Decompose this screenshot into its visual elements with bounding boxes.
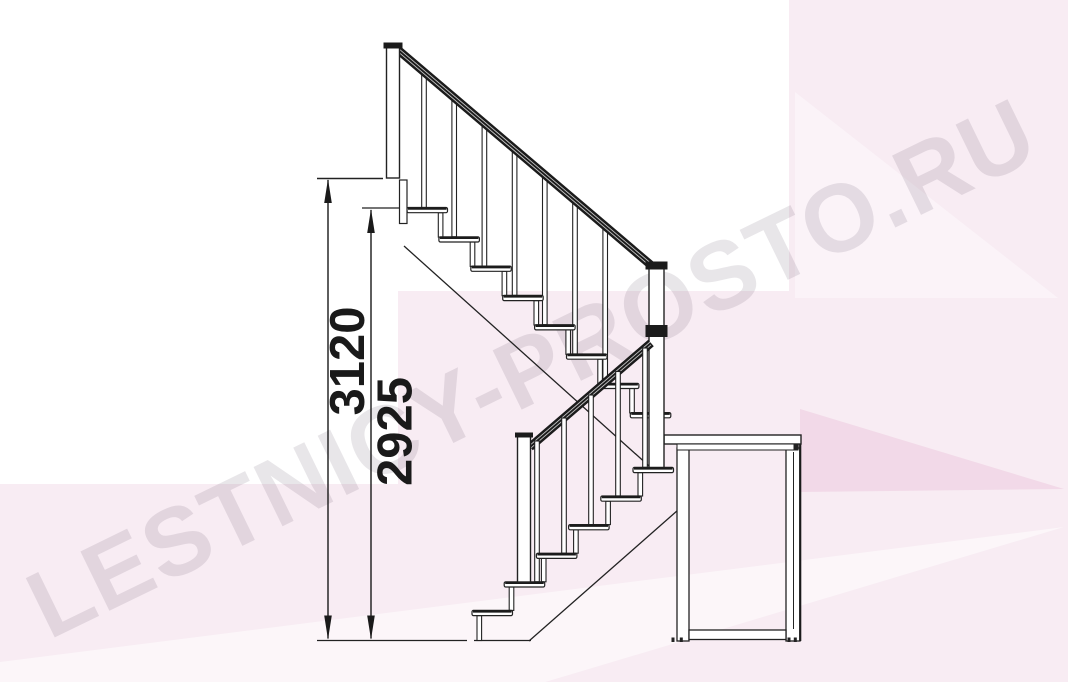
dimension-label-2925: 2925 <box>369 377 423 486</box>
baluster <box>562 418 567 553</box>
platform-bottom-rail <box>689 630 786 640</box>
step-riser <box>566 330 571 354</box>
baluster <box>535 441 540 582</box>
platform-foot-dot <box>794 638 797 643</box>
newel-post-bottom <box>518 435 531 582</box>
staircase-elevation-drawing: LESTNICY-PROSTO.RU <box>0 0 1068 682</box>
baluster <box>616 372 621 497</box>
step-riser <box>477 616 482 641</box>
step-riser <box>630 389 635 413</box>
dimension-label-3120: 3120 <box>321 306 375 415</box>
handrail-upper <box>397 47 652 268</box>
platform-foot-dot <box>672 638 675 643</box>
platform-left-leg <box>677 448 689 641</box>
arrowhead-up <box>367 209 375 233</box>
lower-flight <box>472 325 674 641</box>
baluster <box>512 150 517 295</box>
baluster <box>422 73 427 208</box>
baluster <box>452 99 457 237</box>
step-riser <box>502 271 507 295</box>
step-riser <box>509 587 514 610</box>
newel-post-top-cap <box>384 43 403 49</box>
baluster <box>482 125 487 267</box>
step-riser <box>574 530 579 553</box>
landing-platform <box>664 435 801 642</box>
intermediate-post-body <box>649 266 664 470</box>
baluster <box>589 395 594 525</box>
step-riser <box>534 301 539 325</box>
intermediate-post <box>646 262 668 471</box>
baluster <box>543 176 548 325</box>
platform-foot-dot <box>680 638 683 643</box>
baluster <box>573 202 578 355</box>
step-riser <box>638 473 643 496</box>
platform-apron <box>677 444 798 450</box>
platform-foot-dot <box>788 638 791 643</box>
lower-treads <box>472 467 674 615</box>
intermediate-post-cap <box>646 262 668 270</box>
upper-mount-bracket <box>400 180 408 224</box>
arrowhead-up <box>324 179 332 203</box>
step-riser <box>541 558 546 581</box>
platform-corner-bolt <box>794 444 799 449</box>
step-riser <box>606 501 611 524</box>
intermediate-post-rail-joint <box>646 325 668 337</box>
newel-post-bottom-cap <box>515 433 533 438</box>
newel-post-top <box>387 47 400 178</box>
dimension-2925: 2925 <box>367 209 422 640</box>
arrowhead-down <box>324 616 332 640</box>
staircase-linework: 3120 2925 <box>0 0 1068 682</box>
baluster <box>643 348 648 467</box>
step-riser <box>438 213 443 237</box>
platform-top-board <box>664 435 801 444</box>
baluster <box>603 227 608 383</box>
step-riser <box>470 242 475 266</box>
dimension-3120: 3120 <box>321 179 375 640</box>
arrowhead-down <box>367 616 375 640</box>
